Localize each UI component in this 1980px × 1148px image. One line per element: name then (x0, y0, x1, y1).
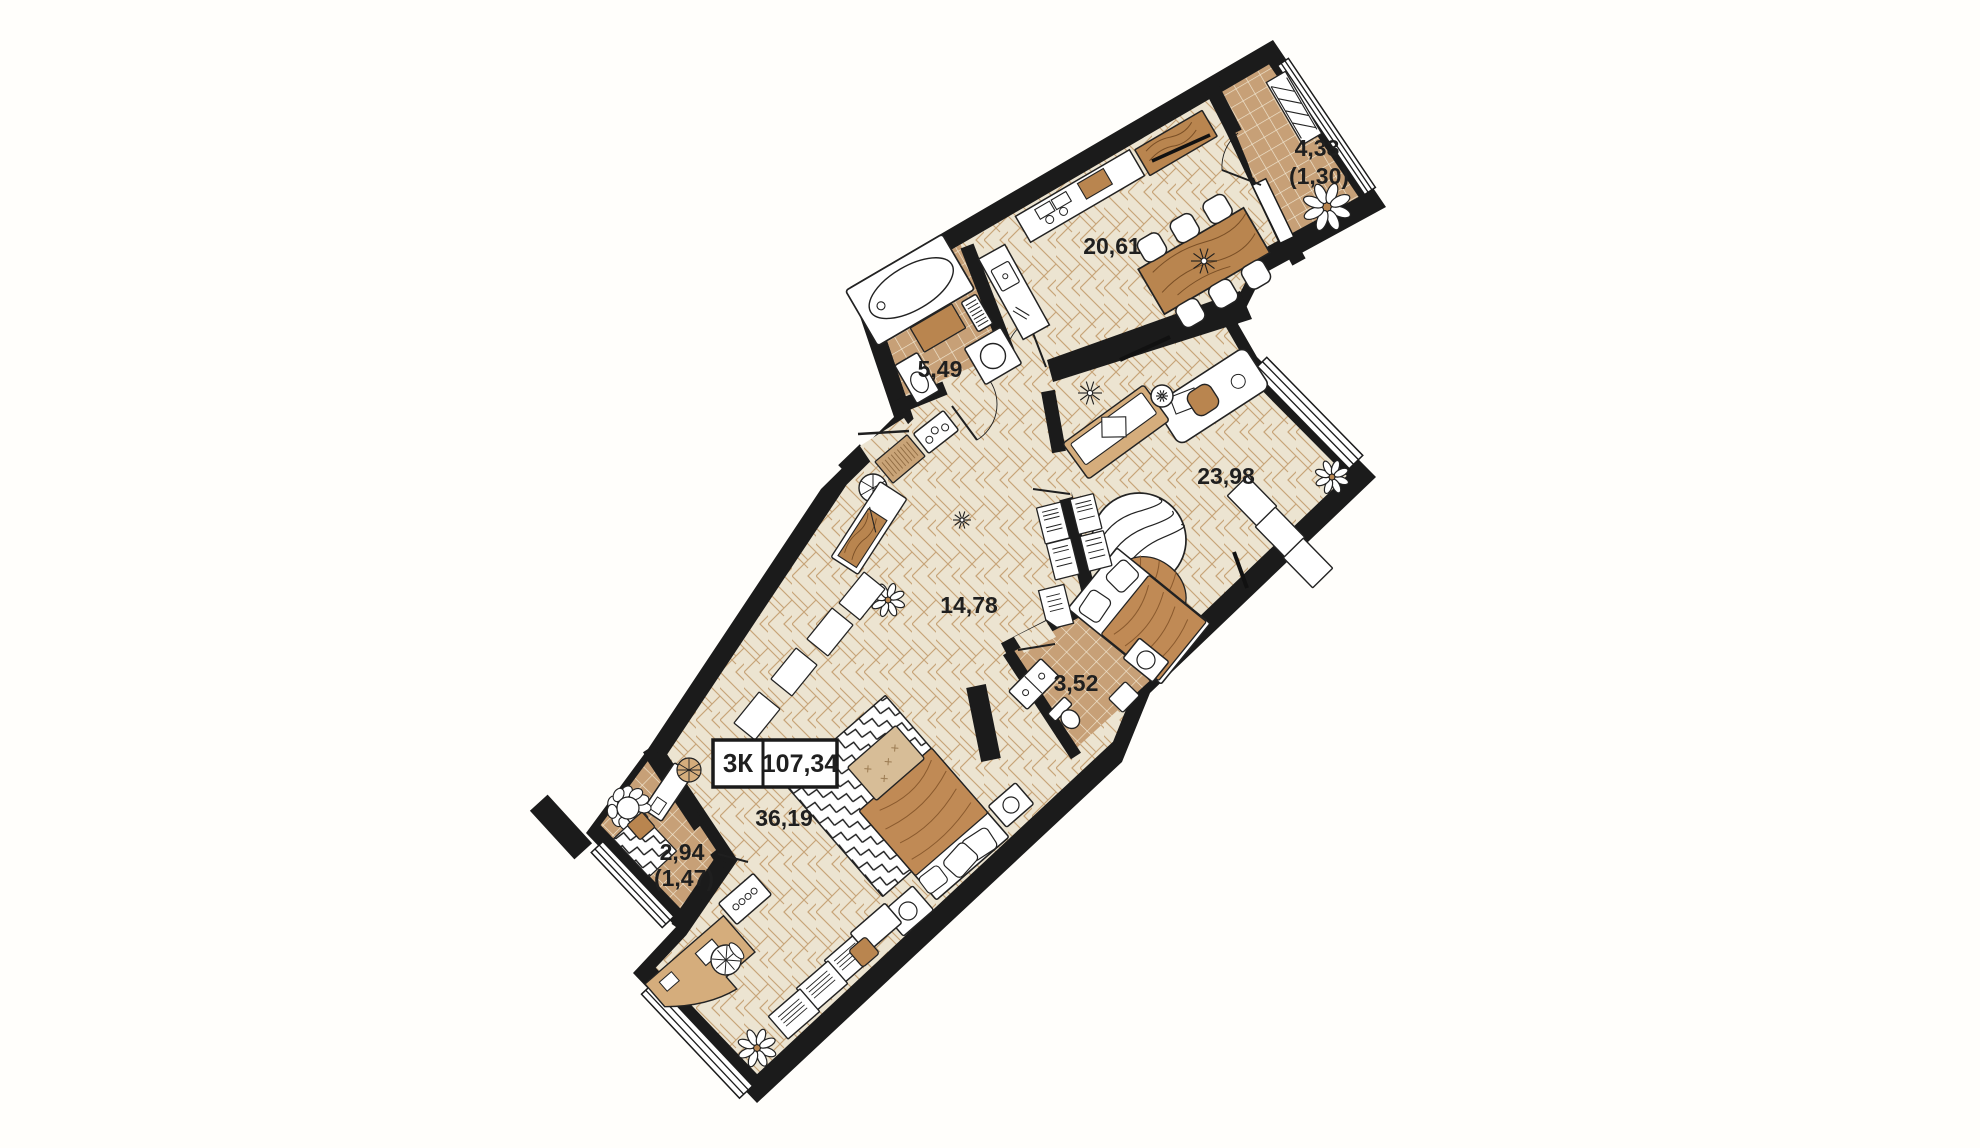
svg-text:(1,30): (1,30) (1289, 163, 1349, 189)
svg-text:3К: 3К (723, 748, 753, 778)
svg-text:4,33: 4,33 (1295, 135, 1340, 161)
svg-text:36,19: 36,19 (755, 805, 813, 831)
svg-text:3,52: 3,52 (1054, 670, 1099, 696)
svg-text:2,94: 2,94 (660, 839, 705, 865)
svg-text:107,34: 107,34 (762, 750, 839, 778)
svg-text:23,98: 23,98 (1197, 463, 1255, 489)
svg-text:(1,47): (1,47) (654, 865, 714, 891)
svg-text:14,78: 14,78 (940, 592, 998, 618)
svg-text:20,61: 20,61 (1083, 233, 1141, 259)
svg-text:5,49: 5,49 (918, 356, 963, 382)
